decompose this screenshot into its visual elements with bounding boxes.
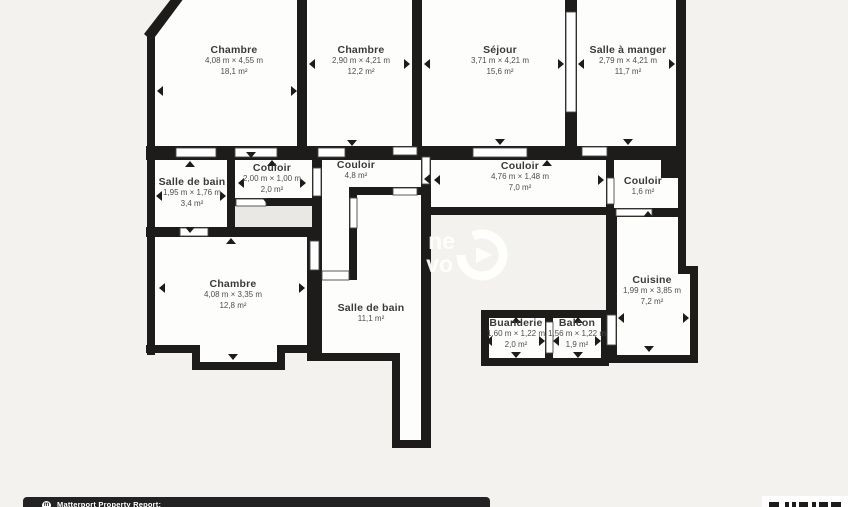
room-name: Couloir	[491, 161, 549, 172]
room-label-salle-de-bain-1: Salle de bain 1,95 m × 1,76 m 3,4 m²	[159, 177, 226, 209]
room-area: 1,9 m²	[548, 340, 606, 351]
room-area: 2,0 m²	[487, 340, 545, 351]
room-label-buanderie: Buanderie 1,60 m × 1,22 m 2,0 m²	[487, 318, 545, 350]
room-name: Balcon	[548, 318, 606, 329]
room-name: Cuisine	[623, 275, 681, 286]
room-area: 18,1 m²	[205, 67, 263, 78]
door-opening	[318, 148, 345, 157]
room-name: Couloir	[243, 163, 301, 174]
room-name: Couloir	[337, 160, 375, 171]
door-opening	[350, 198, 357, 228]
report-bar-label: Matterport Property Report:	[57, 500, 161, 507]
floor-plan-screenshot: Chambre 4,08 m × 4,55 m 18,1 m² Chambre …	[0, 0, 848, 507]
room-name: Chambre	[204, 279, 262, 290]
room-name: Salle de bain	[159, 177, 226, 188]
room-area: 12,8 m²	[204, 301, 262, 312]
room-label-chambre-3: Chambre 4,08 m × 3,35 m 12,8 m²	[204, 279, 262, 311]
qr-code-partial	[762, 496, 848, 507]
door-opening	[176, 148, 216, 157]
door-opening	[473, 148, 527, 157]
room-name: Séjour	[471, 45, 529, 56]
room-name: Salle à manger	[590, 45, 667, 56]
room-area: 12,2 m²	[332, 67, 390, 78]
room-label-balcon: Balcon 1,56 m × 1,22 m 1,9 m²	[548, 318, 606, 350]
door-opening	[310, 241, 319, 270]
door-opening	[393, 188, 417, 195]
room-dimensions: 2,79 m × 4,21 m	[590, 56, 667, 67]
room-area: 3,4 m²	[159, 199, 226, 210]
room-area: 4,8 m²	[337, 171, 375, 182]
door-opening	[607, 315, 616, 345]
room-name: Couloir	[624, 176, 662, 187]
room-label-couloir-petit: Couloir 2,00 m × 1,00 m 2,0 m²	[243, 163, 301, 195]
door-opening	[582, 147, 607, 156]
room-dimensions: 4,08 m × 3,35 m	[204, 290, 262, 301]
room-dimensions: 1,60 m × 1,22 m	[487, 329, 545, 340]
room-label-chambre-1: Chambre 4,08 m × 4,55 m 18,1 m²	[205, 45, 263, 77]
room-label-salle-a-manger: Salle à manger 2,79 m × 4,21 m 11,7 m²	[590, 45, 667, 77]
door-opening	[235, 148, 277, 157]
room-label-sejour: Séjour 3,71 m × 4,21 m 15,6 m²	[471, 45, 529, 77]
closet-void	[235, 206, 312, 229]
door-opening	[322, 271, 349, 280]
room-area: 2,0 m²	[243, 185, 301, 196]
room-label-salle-de-bain-2: Salle de bain 11,1 m²	[338, 303, 405, 325]
room-dimensions: 2,90 m × 4,21 m	[332, 56, 390, 67]
door-opening	[566, 12, 576, 112]
room-label-chambre-2: Chambre 2,90 m × 4,21 m 12,2 m²	[332, 45, 390, 77]
room-dimensions: 4,08 m × 4,55 m	[205, 56, 263, 67]
room-dimensions: 1,95 m × 1,76 m	[159, 188, 226, 199]
matterport-report-bar: m Matterport Property Report:	[23, 497, 490, 507]
room-area: 7,2 m²	[623, 297, 681, 308]
room-label-cuisine: Cuisine 1,99 m × 3,85 m 7,2 m²	[623, 275, 681, 307]
room-name: Chambre	[205, 45, 263, 56]
room-name: Buanderie	[487, 318, 545, 329]
room-name: Chambre	[332, 45, 390, 56]
door-opening	[607, 178, 614, 204]
door-opening	[180, 228, 208, 236]
room-label-couloir-16: Couloir 1,6 m²	[624, 176, 662, 198]
room-area: 1,6 m²	[624, 187, 662, 198]
floor-plan-drawing	[0, 0, 848, 507]
room-dimensions: 1,99 m × 3,85 m	[623, 286, 681, 297]
room-dimensions: 4,76 m × 1,48 m	[491, 172, 549, 183]
room-label-couloir-48: Couloir 4,8 m²	[337, 160, 375, 182]
door-opening	[236, 199, 266, 206]
door-opening	[393, 147, 417, 155]
room-area: 15,6 m²	[471, 67, 529, 78]
room-area: 11,1 m²	[338, 314, 405, 325]
room-dimensions: 2,00 m × 1,00 m	[243, 174, 301, 185]
room-area: 7,0 m²	[491, 183, 549, 194]
matterport-logo-icon: m	[42, 501, 51, 507]
room-dimensions: 1,56 m × 1,22 m	[548, 329, 606, 340]
room-label-couloir-70: Couloir 4,76 m × 1,48 m 7,0 m²	[491, 161, 549, 193]
room-name: Salle de bain	[338, 303, 405, 314]
door-opening	[313, 168, 321, 196]
room-dimensions: 3,71 m × 4,21 m	[471, 56, 529, 67]
room-area: 11,7 m²	[590, 67, 667, 78]
